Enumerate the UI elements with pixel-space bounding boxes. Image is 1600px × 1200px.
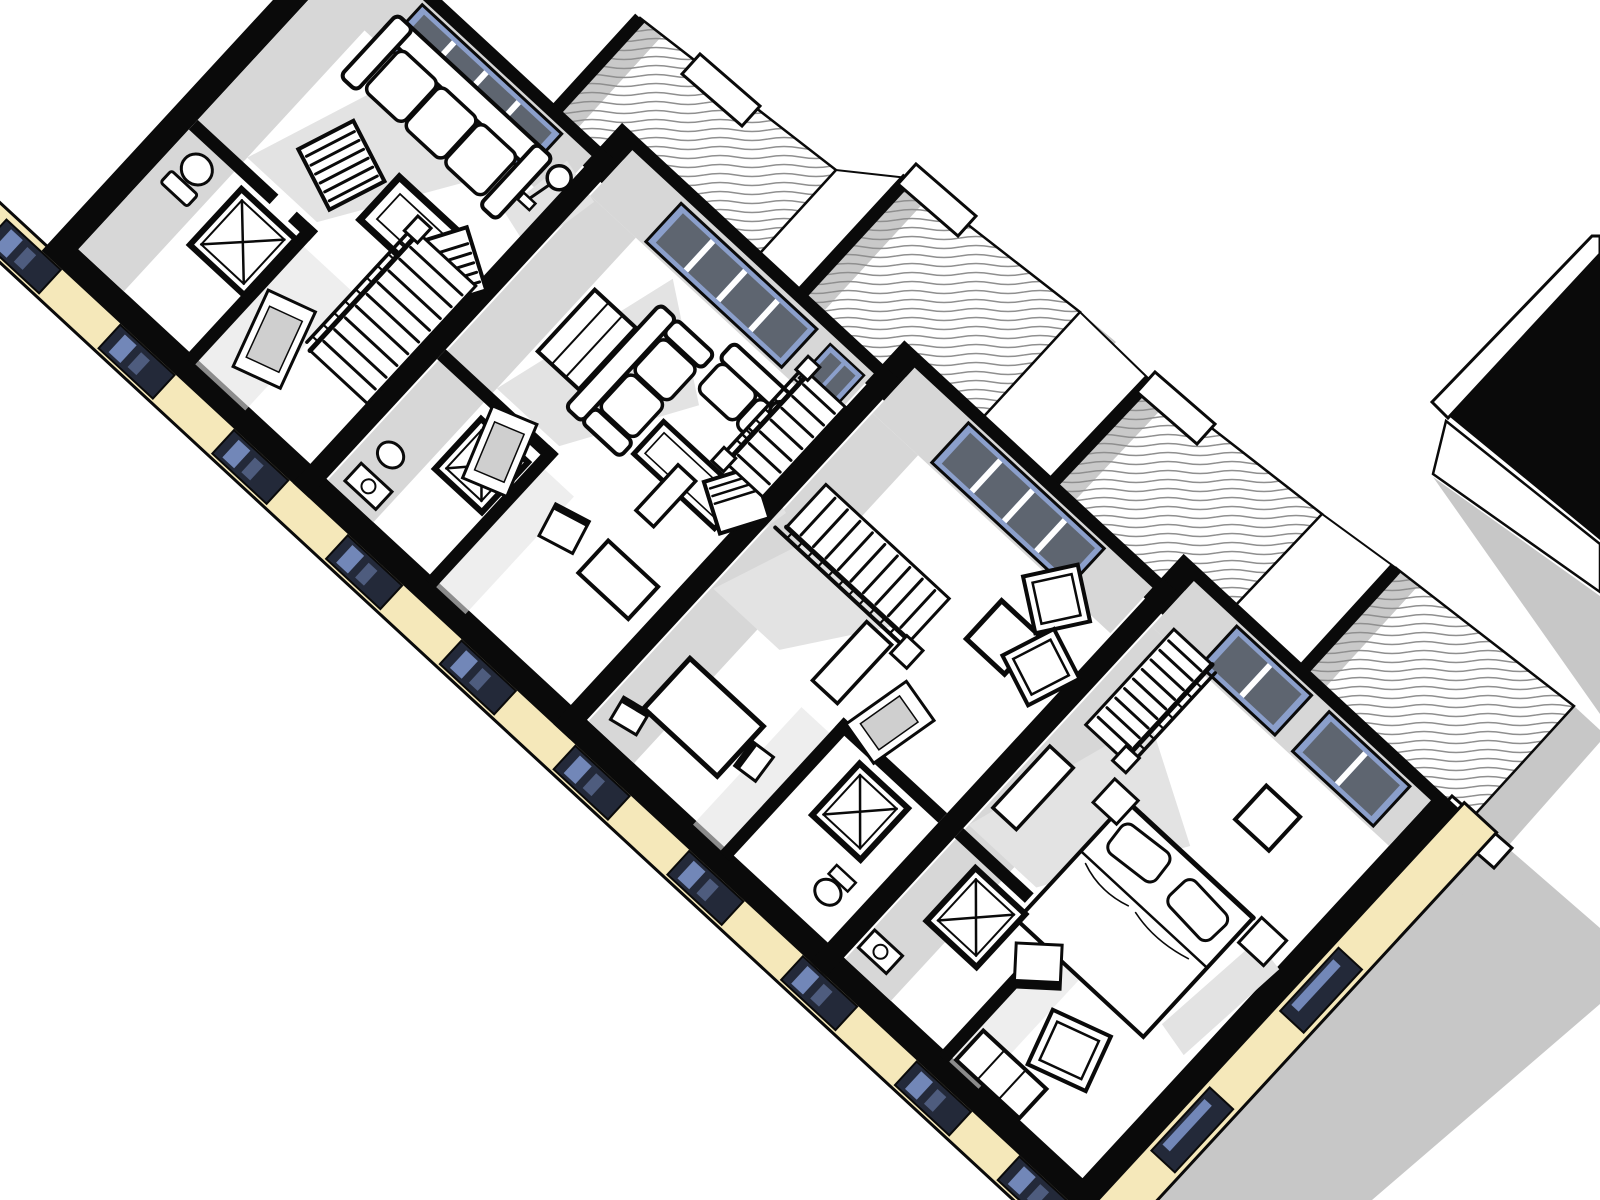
screenshot-stage: Aerial cutaway 3D floor plan of a terrac… [0, 0, 1600, 1200]
floorplan-canvas [0, 0, 1600, 1200]
lounge-chair [1023, 565, 1090, 634]
side-chair [1014, 943, 1062, 989]
